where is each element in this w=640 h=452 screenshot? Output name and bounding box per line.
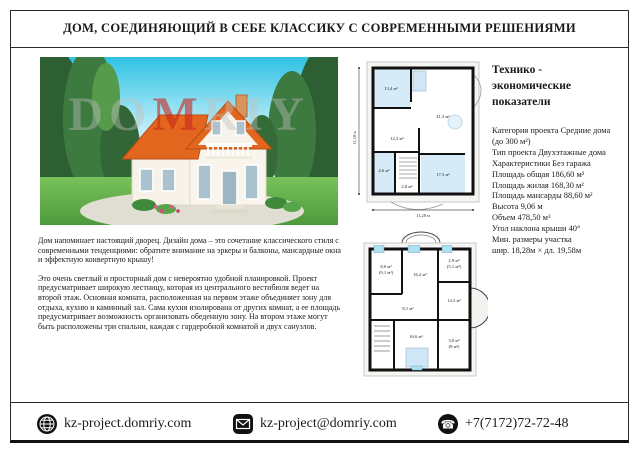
plan1-porch-arc (391, 202, 443, 210)
phone-text: +7(7172)72-72-48 (465, 416, 569, 432)
description: Дом напоминает настоящий дворец. Дизайн … (38, 236, 342, 340)
spec-line: Высота 9,06 м (492, 202, 628, 213)
window (140, 169, 153, 191)
plan2-dormer-arc-inner (406, 235, 436, 243)
spec-line: Угол наклона крыши 40° (492, 224, 628, 235)
gable-window-right (236, 121, 245, 135)
description-paragraph-1: Дом напоминает настоящий дворец. Дизайн … (38, 236, 342, 265)
envelope-icon (232, 413, 254, 435)
spec-line: Площадь общая 186,60 м² (492, 170, 628, 181)
second-floor-plan: 8,0 м² (9,1 м²) 16,2 м² 2,9 м² (5,1 м²) … (350, 230, 488, 390)
spec-line: (до 300 м²) (492, 137, 628, 148)
window (162, 169, 175, 191)
globe-icon (36, 413, 58, 435)
plan1-height-dimension: 11,58 м (352, 131, 358, 145)
spec-line: Категория проекта Средние дома (492, 126, 628, 137)
website-text: kz-project.domriy.com (64, 416, 191, 432)
contact-phone: ☎ +7(7172)72-72-48 (437, 403, 569, 444)
spec-line: Площадь жилая 168,30 м² (492, 181, 628, 192)
phone-icon: ☎ (437, 413, 459, 435)
spec-line: Мин. размеры участка (492, 235, 628, 246)
spec-line: шир. 18,28м × дл. 19,58м (492, 246, 628, 257)
front-door (222, 171, 237, 205)
spec-line: Объем 478,50 м³ (492, 213, 628, 224)
spec-line: Площадь мансарды 88,60 м² (492, 191, 628, 202)
house-photo-art (40, 57, 338, 225)
gable-window-left (212, 121, 221, 135)
contact-email: kz-project@domriy.com (232, 403, 397, 444)
plan1-width-dimension: 11,28 м (416, 213, 430, 219)
plan2-dormer-arc (402, 232, 440, 243)
spec-line: Тип проекта Двухэтажные дома (492, 148, 628, 159)
porch-step (212, 209, 248, 213)
specs-heading: Технико - экономические показатели (492, 62, 596, 110)
first-floor-plan: 13,4 м² 41,3 м² 12,3 м² 4,6 м² 2,8 м² 17… (351, 56, 485, 220)
email-text: kz-project@domriy.com (260, 416, 397, 432)
french-window (198, 165, 211, 199)
specs-panel: Технико - экономические показатели Катег… (492, 62, 628, 257)
title-bar: ДОМ, СОЕДИНЯЮЩИЙ В СЕБЕ КЛАССИКУ С СОВРЕ… (10, 10, 629, 48)
spec-line: Характеристики Без гаража (492, 159, 628, 170)
page-title: ДОМ, СОЕДИНЯЮЩИЙ В СЕБЕ КЛАССИКУ С СОВРЕ… (63, 21, 576, 36)
house-photo: DOMRIY (40, 57, 338, 225)
porch-step (216, 205, 244, 209)
room-area-label: (8 м²) (449, 344, 460, 349)
footer: kz-project.domriy.com kz-project@domriy.… (10, 402, 629, 443)
phone-glyph: ☎ (441, 417, 456, 431)
contact-website: kz-project.domriy.com (36, 403, 191, 444)
description-paragraph-2: Это очень светлый и просторный дом с нев… (38, 274, 342, 332)
plan2-balcony-arc (470, 288, 488, 328)
french-window (245, 165, 258, 199)
